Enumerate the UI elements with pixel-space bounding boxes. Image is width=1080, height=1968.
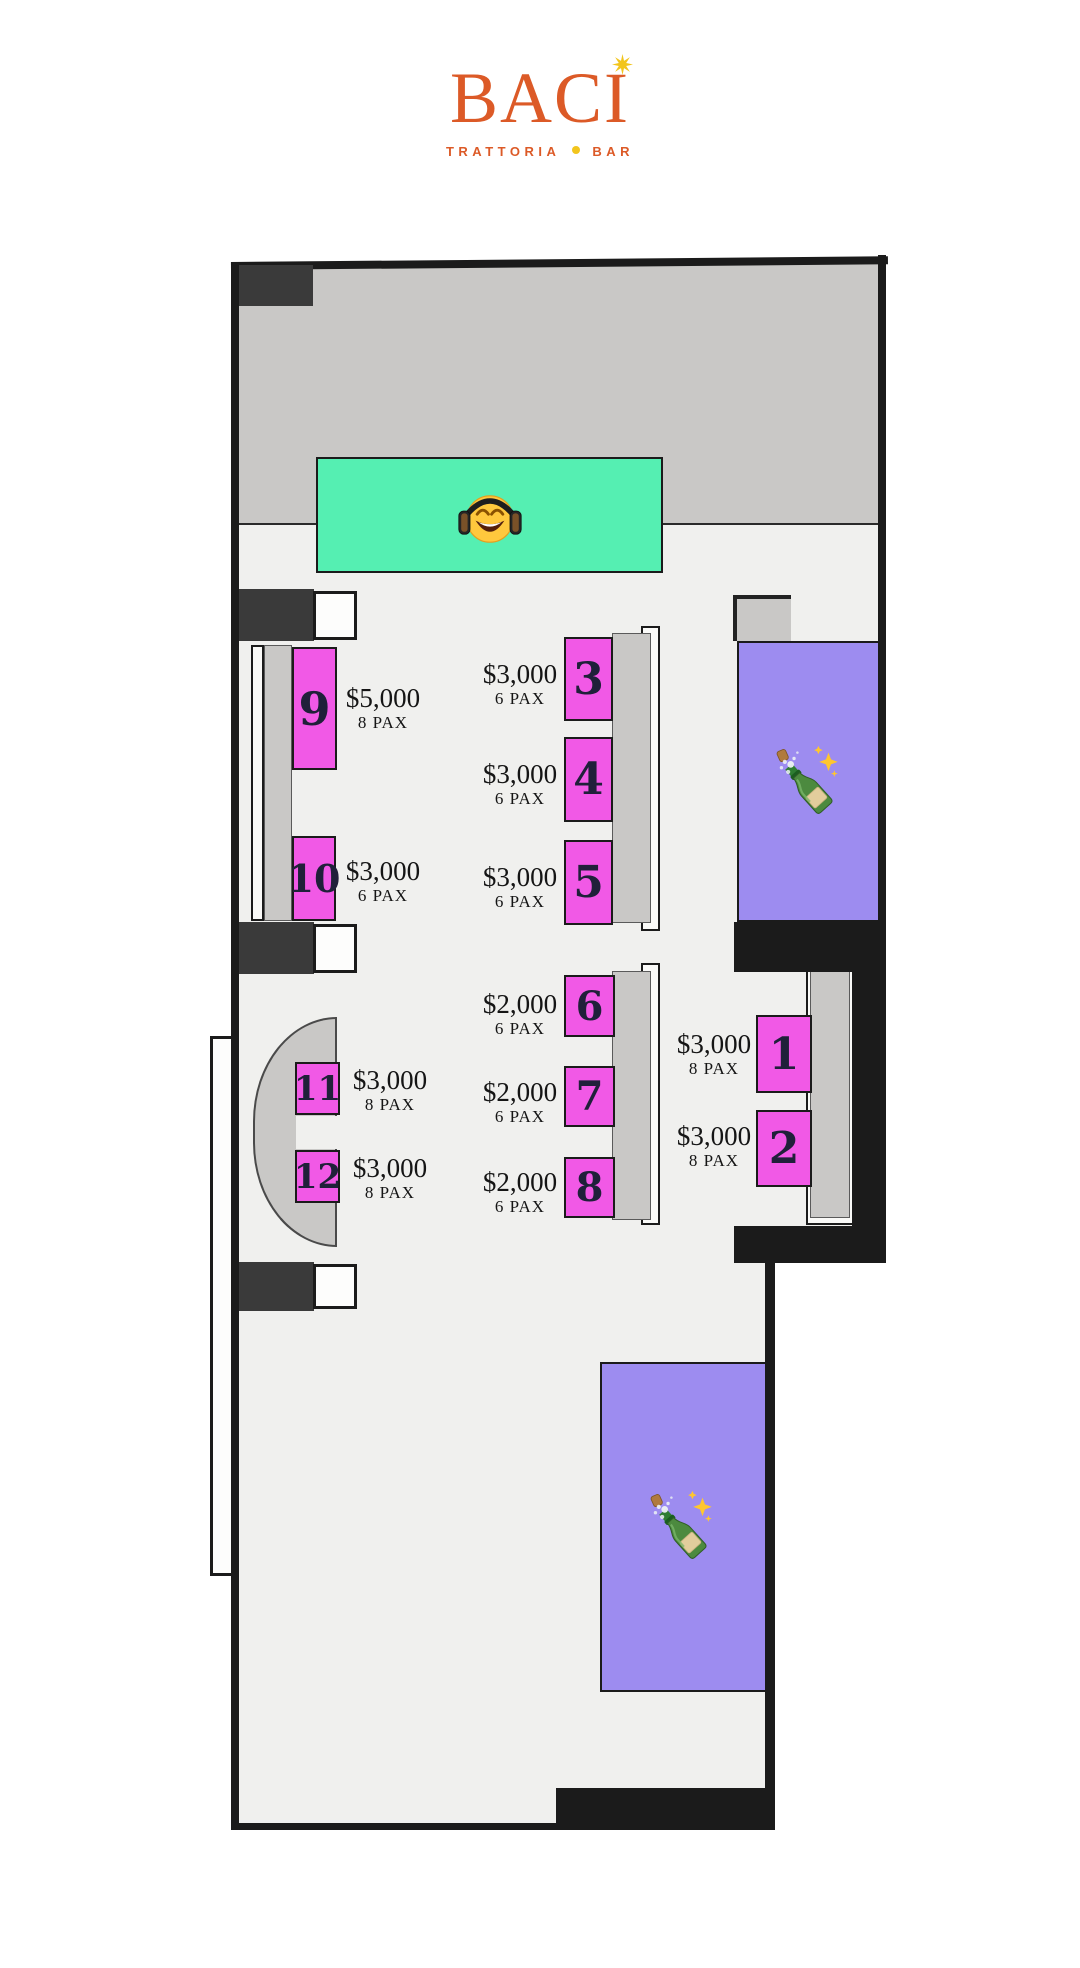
- table-9-pax: 8 PAX: [335, 713, 431, 733]
- column-top-left: [239, 265, 313, 306]
- table-9-price-label: $5,0008 PAX: [335, 683, 431, 733]
- table-1-pax: 8 PAX: [666, 1059, 762, 1079]
- table-2-price: $3,000: [666, 1121, 762, 1151]
- champagne-bottle-emoji-bottom: [642, 1485, 726, 1569]
- table-11-price-label: $3,0008 PAX: [342, 1065, 438, 1115]
- wall-bottom-thin: [233, 1823, 563, 1830]
- table-9-price: $5,000: [335, 683, 431, 713]
- banquette-9-10-back: [251, 645, 264, 921]
- table-12-price: $3,000: [342, 1153, 438, 1183]
- wall-left: [231, 262, 239, 1830]
- page: BACI TRATTORIABAR: [0, 0, 1080, 1968]
- table-12-number: 12: [294, 1157, 341, 1197]
- wall-right-nook: [852, 922, 886, 1262]
- column-left-1: [239, 589, 314, 641]
- table-1[interactable]: 1: [756, 1015, 812, 1093]
- table-8-price-label: $2,0006 PAX: [472, 1167, 568, 1217]
- column-left-2: [239, 922, 314, 974]
- column-left-3: [239, 1262, 314, 1311]
- table-4-price-label: $3,0006 PAX: [472, 759, 568, 809]
- table-9[interactable]: 9: [292, 647, 337, 770]
- table-6-price-label: $2,0006 PAX: [472, 989, 568, 1039]
- table-2[interactable]: 2: [756, 1110, 812, 1187]
- table-5-price-label: $3,0006 PAX: [472, 862, 568, 912]
- table-3-number: 3: [573, 654, 604, 705]
- champagne-bottle-emoji-top: [768, 740, 852, 824]
- banquette-6-7-8-seat: [612, 971, 651, 1220]
- closet-left-3: [313, 1264, 357, 1309]
- table-5-price: $3,000: [472, 862, 568, 892]
- banquette-1-2-seat: [810, 971, 850, 1218]
- table-6-pax: 6 PAX: [472, 1019, 568, 1039]
- table-1-price-label: $3,0008 PAX: [666, 1029, 762, 1079]
- table-8-pax: 6 PAX: [472, 1197, 568, 1217]
- table-3-pax: 6 PAX: [472, 689, 568, 709]
- floor-plan: 9 10 3 4 5 6 7 8 1 2 11 12 $5,0008 PAX $…: [0, 0, 1080, 1968]
- table-1-price: $3,000: [666, 1029, 762, 1059]
- table-3-price-label: $3,0006 PAX: [472, 659, 568, 709]
- banquette-3-4-5-seat: [612, 633, 651, 923]
- vip-service-station: [733, 595, 791, 641]
- table-4-price: $3,000: [472, 759, 568, 789]
- table-7[interactable]: 7: [564, 1066, 615, 1127]
- table-6-number: 6: [576, 983, 604, 1030]
- table-12-pax: 8 PAX: [342, 1183, 438, 1203]
- table-8-number: 8: [576, 1164, 604, 1211]
- table-10-price-label: $3,0006 PAX: [335, 856, 431, 906]
- table-3-price: $3,000: [472, 659, 568, 689]
- table-1-number: 1: [769, 1029, 800, 1080]
- banquette-11-12-notch: [296, 1116, 338, 1149]
- table-3[interactable]: 3: [564, 637, 613, 721]
- table-5-number: 5: [573, 857, 604, 908]
- table-2-price-label: $3,0008 PAX: [666, 1121, 762, 1171]
- wall-bottom-thick: [556, 1788, 775, 1830]
- table-2-number: 2: [769, 1123, 800, 1174]
- table-11-number: 11: [294, 1069, 341, 1109]
- dj-headphones-emoji: [450, 475, 530, 555]
- table-4-number: 4: [573, 754, 604, 805]
- table-7-number: 7: [576, 1073, 604, 1120]
- table-5-pax: 6 PAX: [472, 892, 568, 912]
- closet-left-1: [313, 591, 357, 640]
- table-10-number: 10: [288, 856, 341, 901]
- wall-band-above-tables-1-2: [734, 922, 886, 972]
- table-6[interactable]: 6: [564, 975, 615, 1037]
- table-7-price-label: $2,0006 PAX: [472, 1077, 568, 1127]
- wall-band-below-tables-1-2: [734, 1226, 886, 1263]
- table-11-pax: 8 PAX: [342, 1095, 438, 1115]
- table-12-price-label: $3,0008 PAX: [342, 1153, 438, 1203]
- table-8[interactable]: 8: [564, 1157, 615, 1218]
- table-7-price: $2,000: [472, 1077, 568, 1107]
- closet-left-2: [313, 924, 357, 973]
- table-6-price: $2,000: [472, 989, 568, 1019]
- table-8-price: $2,000: [472, 1167, 568, 1197]
- table-10-pax: 6 PAX: [335, 886, 431, 906]
- table-11[interactable]: 11: [295, 1062, 340, 1115]
- table-11-price: $3,000: [342, 1065, 438, 1095]
- table-7-pax: 6 PAX: [472, 1107, 568, 1127]
- table-2-pax: 8 PAX: [666, 1151, 762, 1171]
- table-9-number: 9: [298, 682, 330, 736]
- table-4[interactable]: 4: [564, 737, 613, 822]
- table-5[interactable]: 5: [564, 840, 613, 925]
- table-12[interactable]: 12: [295, 1150, 340, 1203]
- table-4-pax: 6 PAX: [472, 789, 568, 809]
- wall-right-lower: [765, 1263, 775, 1830]
- table-10-price: $3,000: [335, 856, 431, 886]
- table-10[interactable]: 10: [292, 836, 336, 921]
